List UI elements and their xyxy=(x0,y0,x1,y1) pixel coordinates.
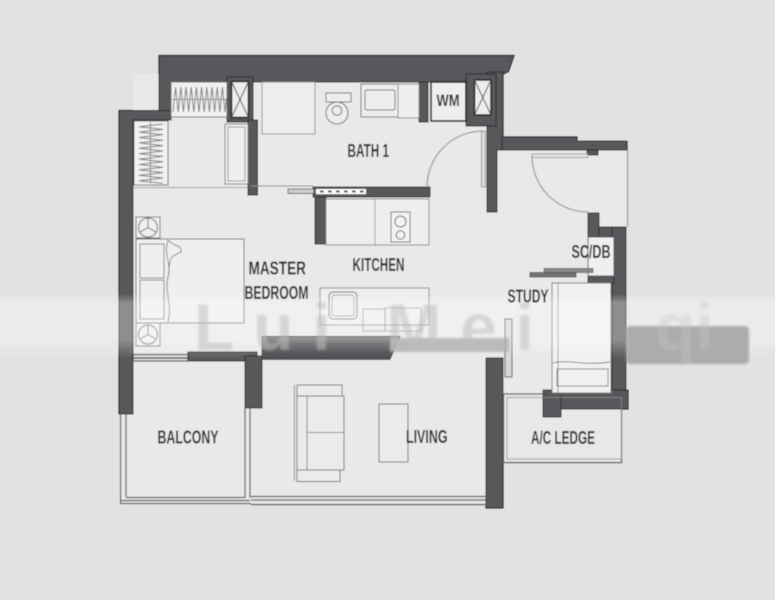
svg-text:BALCONY: BALCONY xyxy=(158,427,219,448)
svg-text:BATH 1: BATH 1 xyxy=(348,140,390,161)
svg-text:KITCHEN: KITCHEN xyxy=(353,254,405,275)
svg-text:WM: WM xyxy=(437,91,460,110)
svg-text:MASTER: MASTER xyxy=(249,258,307,279)
svg-text:SC/DB: SC/DB xyxy=(572,241,611,262)
svg-text:A/C LEDGE: A/C LEDGE xyxy=(531,427,595,448)
svg-text:LIVING: LIVING xyxy=(406,426,448,447)
svg-text:qi: qi xyxy=(655,290,714,364)
